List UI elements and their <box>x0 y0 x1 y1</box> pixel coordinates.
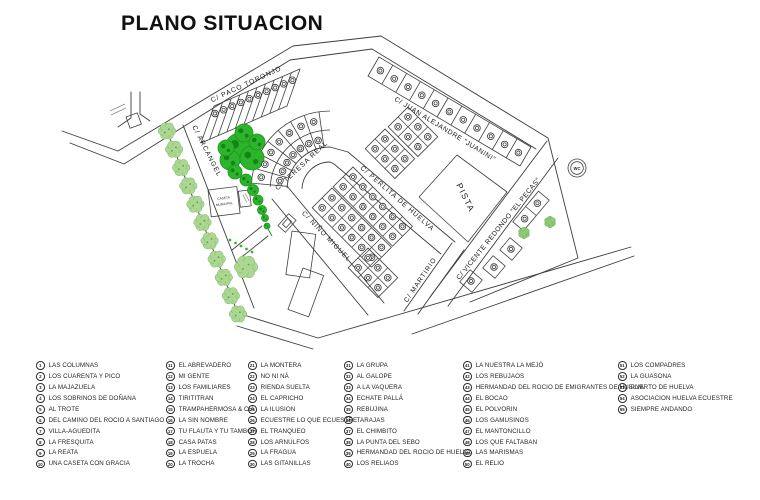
legend-number-badge: 5 <box>36 405 45 414</box>
legend-item: 16LA SIN NOMBRE <box>166 415 257 426</box>
legend-number-badge: 38 <box>344 438 353 447</box>
legend-label: LA ESPUELA <box>175 449 218 456</box>
legend-label: EL BOCAO <box>472 395 508 402</box>
legend-number-badge: 25 <box>248 405 257 414</box>
legend-item: 17TU FLAUTA Y TU TAMBOR <box>166 426 257 437</box>
legend-number-badge: 52 <box>618 372 627 381</box>
legend-item: 39HERMANDAD DEL ROCIO DE HUELVA <box>344 448 471 459</box>
legend-label: TARAJAS <box>353 417 385 424</box>
legend-number-badge: 46 <box>463 416 472 425</box>
legend-number-badge: 28 <box>248 438 257 447</box>
legend-label: LOS QUE FALTABAN <box>472 439 538 446</box>
legend-label: EL TRANQUEO <box>257 428 306 435</box>
legend-number-badge: 55 <box>618 405 627 414</box>
legend-label: EL POLVORIN <box>472 406 518 413</box>
legend-item: 24EL CAPRICHO <box>248 393 357 404</box>
legend-item: 45EL POLVORIN <box>463 404 644 415</box>
legend-label: LOS CUARENTA Y PICO <box>45 373 121 380</box>
legend-item: 26ECUESTRE LO QUE ECUESTRE <box>248 415 357 426</box>
legend-label: A LA VAQUERA <box>353 384 402 391</box>
legend-item: 8LA FRESQUITA <box>36 437 164 448</box>
legend-column: 51LOS COMPADRES52LA GUASONA53PUERTO DE H… <box>618 360 733 415</box>
legend-item: 51LOS COMPADRES <box>618 360 733 371</box>
legend-label: REBUJINA <box>353 406 388 413</box>
legend-number-badge: 40 <box>344 460 353 469</box>
legend-item: 52LA GUASONA <box>618 371 733 382</box>
legend-item: 15TRAMPAHERMOSA & CIA <box>166 404 257 415</box>
legend-item: 3LA MAJAZUELA <box>36 382 164 393</box>
legend-item: 21LA MONTERA <box>248 360 357 371</box>
legend-item: 47EL MANTONCILLO <box>463 426 644 437</box>
legend-item: 6DEL CAMINO DEL ROCIO A SANTIAGO <box>36 415 164 426</box>
legend-item: 2LOS CUARENTA Y PICO <box>36 371 164 382</box>
legend-item: 14TIRITITRAN <box>166 393 257 404</box>
legend-item: 53PUERTO DE HUELVA <box>618 382 733 393</box>
legend-number-badge: 45 <box>463 405 472 414</box>
legend-number-badge: 30 <box>248 460 257 469</box>
legend-item: 1LAS COLUMNAS <box>36 360 164 371</box>
legend-item: 5AL TROTE <box>36 404 164 415</box>
legend-item: 13LOS FAMILIARES <box>166 382 257 393</box>
legend-item: 33A LA VAQUERA <box>344 382 471 393</box>
legend-column: 11EL ABREVADERO12MI GENTE13LOS FAMILIARE… <box>166 360 257 469</box>
legend-item: 37EL CHIMBITO <box>344 426 471 437</box>
legend-item: 32AL GALOPE <box>344 371 471 382</box>
legend-number-badge: 16 <box>166 416 175 425</box>
legend-number-badge: 44 <box>463 394 472 403</box>
legend-label: CASA PATAS <box>175 439 217 446</box>
legend-item: 11EL ABREVADERO <box>166 360 257 371</box>
legend-label: ASOCIACION HUELVA ECUESTRE <box>627 395 733 402</box>
legend-number-badge: 18 <box>166 438 175 447</box>
legend-number-badge: 17 <box>166 427 175 436</box>
legend-item: 23RIENDA SUELTA <box>248 382 357 393</box>
legend-label: LA GUASONA <box>627 373 672 380</box>
legend-number-badge: 39 <box>344 449 353 458</box>
legend-item: 46LOS GAMUSINOS <box>463 415 644 426</box>
legend-label: EL ABREVADERO <box>175 362 232 369</box>
legend-label: LA FRAGUA <box>257 449 297 456</box>
legend-label: HERMANDAD DEL ROCIO DE HUELVA <box>353 449 471 456</box>
legend-label: LOS GAMUSINOS <box>472 417 529 424</box>
legend-item: 28LOS ARNULFOS <box>248 437 357 448</box>
legend-item: 22NO NI NÁ <box>248 371 357 382</box>
legend-number-badge: 13 <box>166 383 175 392</box>
legend-number-badge: 53 <box>618 383 627 392</box>
legend-item: 7VILLA-AGUEDITA <box>36 426 164 437</box>
legend-number-badge: 21 <box>248 361 257 370</box>
legend-item: 29LA FRAGUA <box>248 448 357 459</box>
legend-label: NO NI NÁ <box>257 373 289 380</box>
legend-item: 44EL BOCAO <box>463 393 644 404</box>
legend-label: AL TROTE <box>45 406 80 413</box>
legend-number-badge: 41 <box>463 361 472 370</box>
legend-item: 9LA REATA <box>36 448 164 459</box>
legend-item: 55SIEMPRE ANDANDO <box>618 404 733 415</box>
legend-label: LA FRESQUITA <box>45 439 94 446</box>
legend-label: SIEMPRE ANDANDO <box>627 406 693 413</box>
legend-number-badge: 15 <box>166 405 175 414</box>
legend-label: LAS MARISMAS <box>472 449 524 456</box>
legend-number-badge: 6 <box>36 416 45 425</box>
legend-number-badge: 22 <box>248 372 257 381</box>
legend-label: LA NUESTRA LA MEJÓ <box>472 362 544 369</box>
legend-number-badge: 42 <box>463 372 472 381</box>
legend-label: RIENDA SUELTA <box>257 384 310 391</box>
legend-number-badge: 7 <box>36 427 45 436</box>
legend-label: LA SIN NOMBRE <box>175 417 228 424</box>
legend-column: 1LAS COLUMNAS2LOS CUARENTA Y PICO3LA MAJ… <box>36 360 164 469</box>
legend-label: LAS COLUMNAS <box>45 362 99 369</box>
legend-number-badge: 2 <box>36 372 45 381</box>
legend-number-badge: 27 <box>248 427 257 436</box>
legend-item: 49LAS MARISMAS <box>463 448 644 459</box>
legend-number-badge: 14 <box>166 394 175 403</box>
legend-number-badge: 33 <box>344 383 353 392</box>
legend-number-badge: 43 <box>463 383 472 392</box>
legend-item: 36TARAJAS <box>344 415 471 426</box>
legend-number-badge: 9 <box>36 449 45 458</box>
legend-label: LOS ARNULFOS <box>257 439 310 446</box>
legend-item: 54ASOCIACION HUELVA ECUESTRE <box>618 393 733 404</box>
legend-number-badge: 32 <box>344 372 353 381</box>
legend-item: 48LOS QUE FALTABAN <box>463 437 644 448</box>
legend-number-badge: 48 <box>463 438 472 447</box>
legend-item: 35REBUJINA <box>344 404 471 415</box>
legend-number-badge: 4 <box>36 394 45 403</box>
legend-label: LA ILUSION <box>257 406 296 413</box>
legend-item: 34ECHATE PALLÁ <box>344 393 471 404</box>
legend-number-badge: 23 <box>248 383 257 392</box>
legend-number-badge: 54 <box>618 394 627 403</box>
legend-label: LA PUNTA DEL SEBO <box>353 439 420 446</box>
legend-number-badge: 31 <box>344 361 353 370</box>
legend-label: LA MONTERA <box>257 362 302 369</box>
legend-label: LOS REBUJAOS <box>472 373 525 380</box>
legend-label: TU FLAUTA Y TU TAMBOR <box>175 428 257 435</box>
legend-column: 41LA NUESTRA LA MEJÓ42LOS REBUJAOS43HERM… <box>463 360 644 469</box>
legend-number-badge: 50 <box>463 460 472 469</box>
legend-item: 20LA TROCHA <box>166 458 257 469</box>
legend-number-badge: 29 <box>248 449 257 458</box>
site-plan-page: PLANO SITUACION <box>0 0 760 500</box>
legend-number-badge: 8 <box>36 438 45 447</box>
legend-item: 31LA GRUPA <box>344 360 471 371</box>
legend-label: TIRITITRAN <box>175 395 214 402</box>
legend-item: 50EL RELIO <box>463 458 644 469</box>
legend-label: TRAMPAHERMOSA & CIA <box>175 406 255 413</box>
legend-label: AL GALOPE <box>353 373 392 380</box>
legend-item: 38LA PUNTA DEL SEBO <box>344 437 471 448</box>
legend-number-badge: 10 <box>36 460 45 469</box>
legend-label: LA GRUPA <box>353 362 388 369</box>
legend-label: UNA CASETA CON GRACIA <box>45 460 130 467</box>
legend-label: LA MAJAZUELA <box>45 384 96 391</box>
legend-item: 42LOS REBUJAOS <box>463 371 644 382</box>
legend-label: LA TROCHA <box>175 460 215 467</box>
legend-number-badge: 35 <box>344 405 353 414</box>
legend-label: ECUESTRE LO QUE ECUESTRE <box>257 417 358 424</box>
legend-number-badge: 34 <box>344 394 353 403</box>
legend-column: 21LA MONTERA22NO NI NÁ23RIENDA SUELTA24E… <box>248 360 357 469</box>
legend-number-badge: 36 <box>344 416 353 425</box>
legend-label: PUERTO DE HUELVA <box>627 384 694 391</box>
legend-number-badge: 26 <box>248 416 257 425</box>
legend-item: 4LOS SOBRINOS DE DOÑANA <box>36 393 164 404</box>
legend: 1LAS COLUMNAS2LOS CUARENTA Y PICO3LA MAJ… <box>0 0 760 500</box>
legend-label: LOS SOBRINOS DE DOÑANA <box>45 395 136 402</box>
legend-number-badge: 47 <box>463 427 472 436</box>
legend-label: EL CAPRICHO <box>257 395 304 402</box>
legend-number-badge: 11 <box>166 361 175 370</box>
legend-item: 19LA ESPUELA <box>166 448 257 459</box>
legend-item: 43HERMANDAD DEL ROCIO DE EMIGRANTES DE H… <box>463 382 644 393</box>
legend-label: ECHATE PALLÁ <box>353 395 403 402</box>
legend-label: DEL CAMINO DEL ROCIO A SANTIAGO <box>45 417 165 424</box>
legend-label: LOS RELIAOS <box>353 460 399 467</box>
legend-label: MI GENTE <box>175 373 210 380</box>
legend-number-badge: 12 <box>166 372 175 381</box>
legend-item: 27EL TRANQUEO <box>248 426 357 437</box>
legend-item: 18CASA PATAS <box>166 437 257 448</box>
legend-number-badge: 20 <box>166 460 175 469</box>
legend-number-badge: 51 <box>618 361 627 370</box>
legend-label: LOS FAMILIARES <box>175 384 231 391</box>
legend-item: 40LOS RELIAOS <box>344 458 471 469</box>
legend-item: 25LA ILUSION <box>248 404 357 415</box>
legend-item: 41LA NUESTRA LA MEJÓ <box>463 360 644 371</box>
legend-label: LA REATA <box>45 449 78 456</box>
legend-label: EL CHIMBITO <box>353 428 397 435</box>
legend-item: 12MI GENTE <box>166 371 257 382</box>
legend-number-badge: 49 <box>463 449 472 458</box>
legend-label: VILLA-AGUEDITA <box>45 428 101 435</box>
legend-label: LOS COMPADRES <box>627 362 686 369</box>
legend-number-badge: 24 <box>248 394 257 403</box>
legend-column: 31LA GRUPA32AL GALOPE33A LA VAQUERA34ECH… <box>344 360 471 469</box>
legend-label: LAS GITANILLAS <box>257 460 311 467</box>
legend-item: 10UNA CASETA CON GRACIA <box>36 458 164 469</box>
legend-number-badge: 3 <box>36 383 45 392</box>
legend-item: 30LAS GITANILLAS <box>248 458 357 469</box>
legend-number-badge: 1 <box>36 361 45 370</box>
legend-label: EL MANTONCILLO <box>472 428 531 435</box>
legend-number-badge: 19 <box>166 449 175 458</box>
legend-number-badge: 37 <box>344 427 353 436</box>
legend-label: EL RELIO <box>472 460 504 467</box>
